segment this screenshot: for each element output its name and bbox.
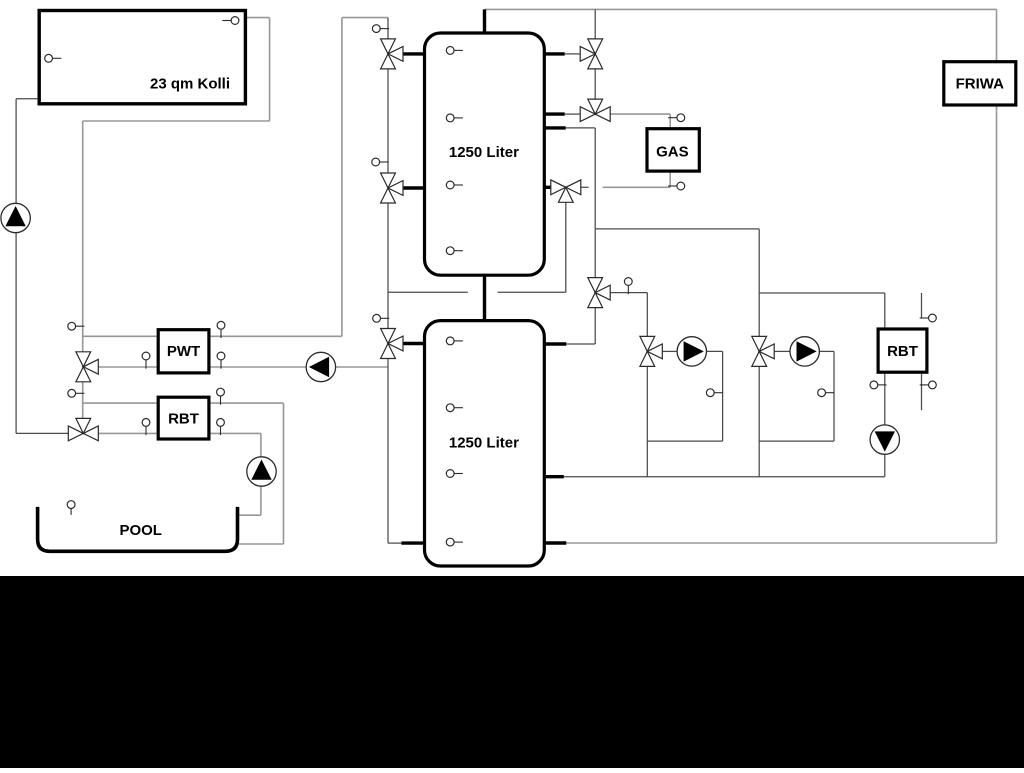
svg-text:GAS: GAS (656, 143, 689, 160)
svg-text:1250 Liter: 1250 Liter (449, 144, 519, 161)
svg-text:1250 Liter: 1250 Liter (449, 435, 519, 452)
svg-text:FRIWA: FRIWA (956, 76, 1004, 93)
svg-text:23 qm Kolli: 23 qm Kolli (150, 75, 230, 92)
svg-text:PWT: PWT (167, 343, 200, 360)
svg-text:RBT: RBT (168, 411, 199, 428)
svg-text:RBT: RBT (887, 343, 918, 360)
svg-text:POOL: POOL (119, 522, 162, 539)
